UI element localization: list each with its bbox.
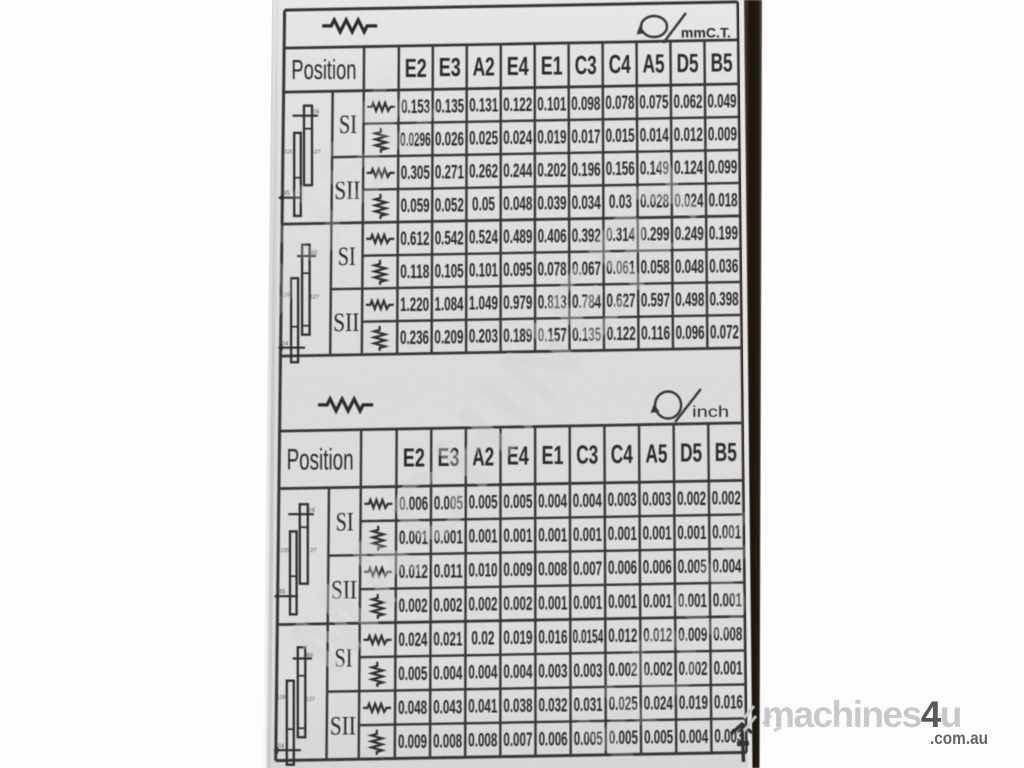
svg-text:.com.au: .com.au <box>930 728 988 748</box>
